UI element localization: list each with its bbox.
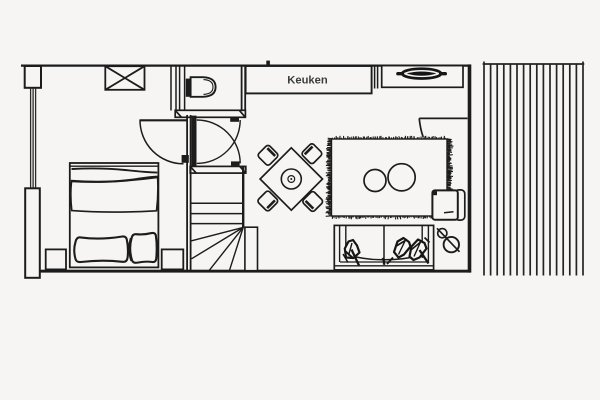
svg-text:Keuken: Keuken [287,74,328,86]
